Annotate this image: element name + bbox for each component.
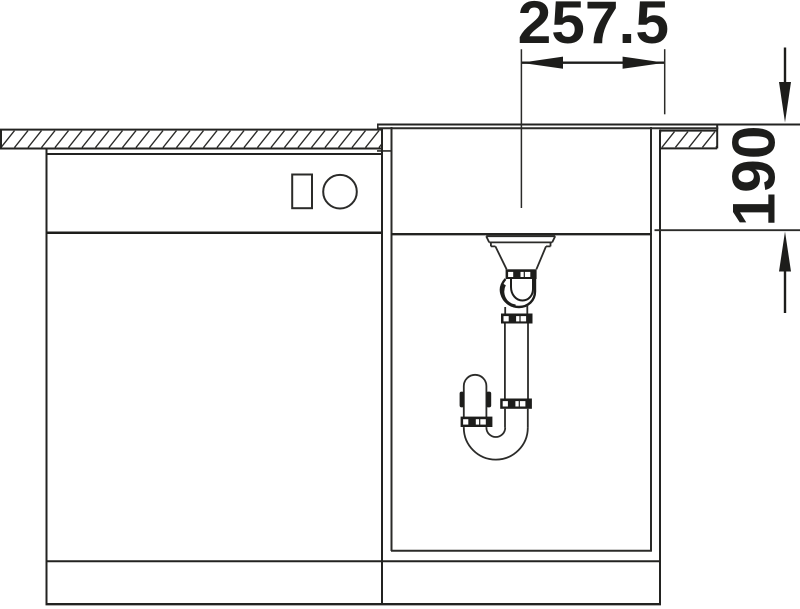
svg-text:257.5: 257.5 <box>518 0 669 56</box>
svg-text:190: 190 <box>720 126 788 227</box>
